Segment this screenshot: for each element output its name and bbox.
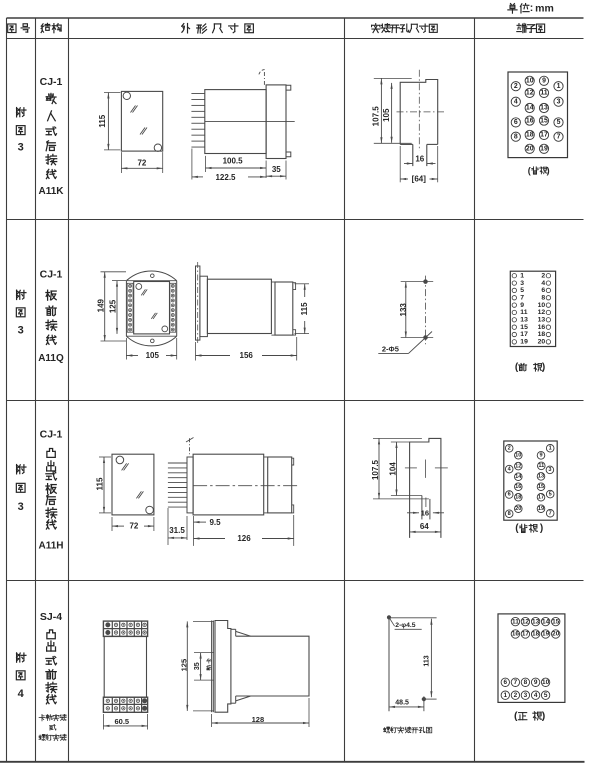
svg-text:4: 4 [541, 280, 545, 287]
svg-text:19: 19 [540, 146, 548, 153]
svg-text:17: 17 [540, 132, 548, 139]
svg-text:128: 128 [252, 715, 265, 724]
svg-text:3: 3 [520, 280, 524, 287]
svg-text:18: 18 [532, 631, 540, 638]
svg-text:4: 4 [508, 466, 512, 472]
svg-text:15: 15 [552, 618, 560, 625]
svg-text:1: 1 [520, 272, 524, 279]
svg-text:11: 11 [520, 309, 527, 316]
svg-text:156: 156 [240, 351, 254, 360]
svg-text:18: 18 [526, 132, 534, 139]
svg-text:17: 17 [520, 331, 528, 338]
svg-text:9: 9 [539, 453, 542, 459]
svg-text:12: 12 [522, 618, 530, 625]
svg-text:): ) [540, 523, 543, 534]
svg-text:10: 10 [515, 452, 521, 458]
svg-text:2-Φ5: 2-Φ5 [382, 345, 399, 354]
svg-text:9: 9 [542, 78, 546, 85]
svg-text:3: 3 [18, 324, 24, 336]
svg-text:13: 13 [532, 618, 540, 625]
svg-text:A11K: A11K [38, 186, 64, 197]
svg-text:14: 14 [515, 474, 522, 480]
svg-text:35: 35 [194, 662, 201, 670]
svg-text:105: 105 [146, 351, 160, 360]
svg-text:100.5: 100.5 [223, 157, 244, 166]
svg-text:64: 64 [420, 522, 429, 531]
svg-text:9.5: 9.5 [209, 518, 221, 527]
svg-text:9: 9 [534, 679, 538, 686]
svg-text:126: 126 [237, 534, 251, 543]
svg-text:A11Q: A11Q [38, 353, 64, 364]
svg-text:72: 72 [137, 159, 146, 168]
svg-text:5: 5 [520, 287, 524, 294]
svg-text:3: 3 [524, 692, 528, 699]
svg-text:7: 7 [520, 294, 524, 301]
svg-text:A11H: A11H [38, 541, 63, 552]
svg-text:72: 72 [129, 521, 138, 530]
svg-text:8: 8 [508, 511, 511, 517]
svg-text:7: 7 [514, 679, 518, 686]
svg-text:133: 133 [399, 303, 408, 317]
svg-text:17: 17 [522, 631, 530, 638]
svg-text:2-φ4.5: 2-φ4.5 [395, 622, 416, 629]
svg-text:15: 15 [540, 117, 548, 124]
svg-text:11: 11 [512, 618, 519, 625]
svg-text:17: 17 [538, 494, 544, 500]
svg-text:19: 19 [542, 631, 550, 638]
svg-text:31.5: 31.5 [169, 526, 185, 535]
svg-text:105: 105 [382, 108, 391, 122]
svg-text:): ) [547, 166, 550, 176]
svg-text:48.5: 48.5 [395, 699, 409, 706]
svg-text:SJ-4: SJ-4 [40, 611, 62, 623]
svg-text:16: 16 [515, 484, 521, 490]
svg-text:8: 8 [541, 294, 545, 301]
svg-text:1: 1 [504, 692, 508, 699]
svg-text:20: 20 [538, 339, 546, 346]
svg-text:12: 12 [515, 463, 521, 469]
svg-text:107.5: 107.5 [371, 459, 380, 480]
svg-text:113: 113 [424, 655, 431, 666]
svg-text:125: 125 [180, 659, 189, 672]
svg-text:20: 20 [515, 506, 521, 512]
svg-text:60.5: 60.5 [114, 717, 129, 726]
svg-text:3: 3 [548, 467, 551, 473]
svg-text:16: 16 [526, 117, 534, 124]
svg-text:8: 8 [524, 679, 528, 686]
svg-text:104: 104 [389, 462, 398, 476]
svg-text:18: 18 [538, 331, 546, 338]
svg-text:11: 11 [540, 90, 547, 97]
svg-text:5: 5 [549, 491, 552, 497]
svg-text:6: 6 [541, 287, 545, 294]
svg-text:CJ-1: CJ-1 [40, 428, 63, 440]
svg-text:20: 20 [552, 631, 560, 638]
svg-text:10: 10 [538, 302, 546, 309]
svg-text:16: 16 [512, 631, 520, 638]
svg-text:14: 14 [526, 105, 534, 112]
svg-text:115: 115 [300, 302, 309, 315]
svg-text:3: 3 [557, 98, 561, 105]
svg-text:16: 16 [421, 508, 429, 517]
svg-text:16: 16 [538, 324, 546, 331]
svg-text:): ) [542, 362, 545, 373]
svg-text:9: 9 [520, 302, 524, 309]
svg-text:1: 1 [549, 446, 552, 452]
svg-text:19: 19 [538, 506, 544, 512]
svg-text:115: 115 [96, 477, 105, 490]
svg-text:115: 115 [98, 114, 107, 127]
svg-text:CJ-1: CJ-1 [40, 269, 63, 281]
svg-text:14: 14 [542, 618, 550, 625]
svg-text:6: 6 [514, 119, 518, 126]
svg-text:4: 4 [514, 98, 518, 105]
svg-text:13: 13 [538, 474, 544, 480]
svg-text:2: 2 [514, 83, 518, 90]
svg-text:3: 3 [18, 501, 24, 513]
svg-text:10: 10 [526, 78, 534, 85]
svg-text:10: 10 [542, 679, 550, 686]
svg-text:20: 20 [526, 146, 534, 153]
svg-text:2: 2 [541, 272, 545, 279]
svg-text:12: 12 [526, 90, 534, 97]
svg-text:18: 18 [515, 494, 521, 500]
svg-text:19: 19 [520, 339, 528, 346]
svg-text:6: 6 [504, 679, 508, 686]
svg-text:3: 3 [18, 142, 24, 154]
svg-text:13: 13 [540, 105, 548, 112]
svg-text:5: 5 [544, 692, 548, 699]
svg-text:15: 15 [520, 324, 528, 331]
svg-text:107.5: 107.5 [372, 106, 381, 127]
svg-text:125: 125 [109, 299, 118, 313]
svg-text:8: 8 [514, 133, 518, 140]
svg-text:(: ( [514, 710, 518, 722]
svg-text::: : [530, 2, 534, 14]
svg-text:(: ( [528, 166, 531, 176]
svg-text:mm: mm [535, 3, 554, 15]
svg-text:2: 2 [514, 692, 518, 699]
svg-text:CJ-1: CJ-1 [40, 76, 63, 88]
svg-text:149: 149 [96, 298, 105, 312]
svg-text:4: 4 [18, 688, 25, 700]
svg-text:(: ( [515, 523, 519, 534]
svg-text:6: 6 [508, 492, 511, 498]
svg-text:): ) [542, 710, 546, 722]
svg-text:11: 11 [538, 463, 544, 469]
svg-text:4: 4 [534, 692, 538, 699]
svg-text:1: 1 [557, 83, 561, 90]
svg-text:16: 16 [415, 155, 424, 164]
svg-text:5: 5 [557, 119, 561, 126]
svg-text:2: 2 [508, 446, 511, 452]
svg-text:(: ( [515, 362, 519, 373]
svg-text:35: 35 [272, 165, 281, 174]
svg-text:13: 13 [538, 317, 546, 324]
svg-text:7: 7 [557, 133, 561, 140]
svg-text:7: 7 [549, 510, 552, 516]
svg-text:13: 13 [520, 317, 528, 324]
svg-text:15: 15 [538, 484, 544, 490]
svg-text:12: 12 [538, 309, 546, 316]
svg-text:122.5: 122.5 [215, 173, 236, 182]
svg-text:[64]: [64] [412, 175, 427, 184]
